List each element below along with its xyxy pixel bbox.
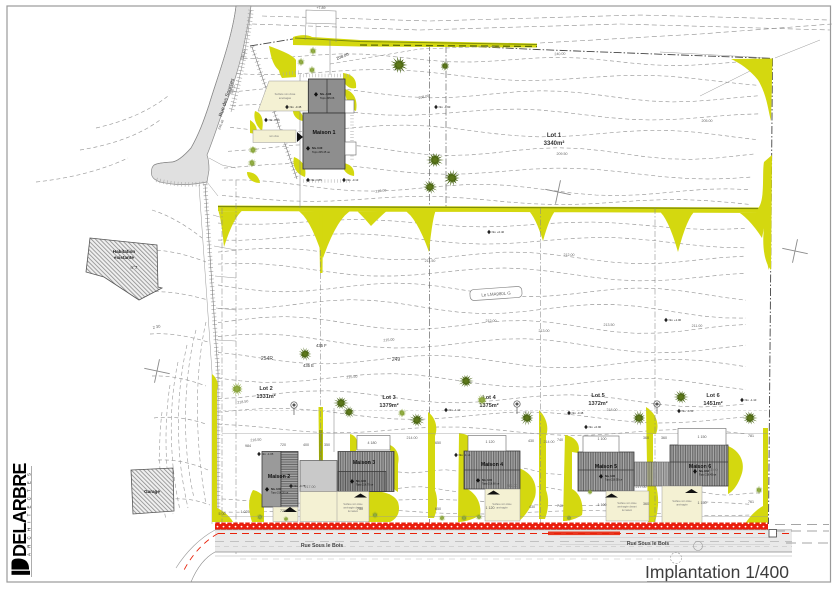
svg-text:Niv. +0.40: Niv. +0.40 [492,230,505,234]
svg-text:Lot 6: Lot 6 [706,393,719,399]
svg-text:435 F: 435 F [316,343,327,348]
svg-text:4 180: 4 180 [368,441,377,445]
svg-text:1 120: 1 120 [486,440,495,444]
svg-text:1 150: 1 150 [698,435,707,439]
svg-text:Topo 205.45 ue: Topo 205.45 ue [312,150,330,154]
svg-text:NE -0.85: NE -0.85 [311,178,322,182]
svg-text:Topo 216.55 ue: Topo 216.55 ue [605,479,623,482]
svg-text:211.00: 211.00 [692,324,703,328]
svg-text:430: 430 [529,505,535,509]
svg-text:761: 761 [748,500,754,504]
svg-text:Maison 4: Maison 4 [481,462,503,468]
svg-text:360: 360 [643,502,649,506]
svg-text:212.00: 212.00 [564,253,575,257]
svg-text:720: 720 [280,443,286,447]
svg-text:Niv. -1.10: Niv. -1.10 [745,398,757,402]
svg-text:214.00: 214.00 [544,440,555,444]
svg-text:350: 350 [324,443,330,447]
svg-text:non clos: non clos [269,134,279,138]
svg-text:Rue Sous le Bois: Rue Sous le Bois [627,541,669,547]
svg-text:217.00: 217.00 [507,484,518,488]
svg-text:Niv. -0.48: Niv. -0.48 [572,411,584,415]
svg-text:1 100: 1 100 [598,437,607,441]
svg-text:ARCHITECTES: ARCHITECTES [27,468,32,556]
svg-text:Niv. +1.00: Niv. +1.00 [669,318,682,322]
svg-text:Habitation: Habitation [113,249,136,254]
svg-text:240.00: 240.00 [554,52,565,57]
svg-text:Niv. -1.10: Niv. -1.10 [449,408,461,412]
svg-text:Niv. -0.86: Niv. -0.86 [320,92,332,96]
svg-text:Surface non close: Surface non close [275,92,296,96]
svg-text:740: 740 [557,438,563,442]
svg-text:213.00: 213.00 [539,329,550,333]
svg-text:Niv. -0.50: Niv. -0.50 [682,409,694,413]
svg-text:3340m²: 3340m² [544,140,565,147]
svg-text:5 00: 5 00 [219,512,226,516]
svg-text:214.00: 214.00 [707,468,718,472]
svg-text:360: 360 [661,436,667,440]
svg-text:Niv. -0.60: Niv. -0.60 [439,105,451,109]
svg-text:205.00: 205.00 [702,119,713,123]
svg-text:1 150: 1 150 [698,501,707,505]
svg-text:Lot 1: Lot 1 [547,133,562,139]
svg-text:Maison 1: Maison 1 [312,130,335,136]
svg-text:750: 750 [357,507,363,511]
svg-text:n°7: n°7 [131,265,138,270]
svg-text:Implantation 1/400: Implantation 1/400 [645,562,789,582]
svg-text:Maison 5: Maison 5 [595,464,617,470]
svg-text:218.00: 218.00 [607,408,618,412]
svg-text:213.50: 213.50 [604,323,615,327]
svg-text:1451m²: 1451m² [703,400,722,407]
svg-text:Topo 205.06: Topo 205.06 [320,96,335,100]
svg-text:Lot 2: Lot 2 [259,386,272,392]
svg-text:+7.89: +7.89 [316,6,325,10]
svg-text:Niv. 0.00: Niv. 0.00 [312,146,323,150]
svg-text:217.00: 217.00 [636,485,647,489]
svg-text:Niv. -0.13: Niv. -0.13 [347,178,359,182]
svg-text:la maison: la maison [622,509,633,512]
svg-text:Niv. -1.14: Niv. -1.14 [459,453,471,457]
svg-text:Niv. +0.90: Niv. +0.90 [589,425,602,429]
svg-text:211.50: 211.50 [425,259,436,263]
svg-text:1331m²: 1331m² [256,393,275,400]
svg-text:720: 720 [280,509,286,513]
svg-text:400: 400 [303,443,309,447]
svg-text:984: 984 [245,444,251,448]
svg-text:1372m²: 1372m² [588,400,607,407]
svg-text:Lot 5: Lot 5 [591,393,604,399]
svg-text:Niv. -0.45: Niv. -0.45 [290,105,302,109]
svg-text:650: 650 [435,441,441,445]
svg-text:1375m²: 1375m² [479,402,498,409]
svg-text:254R: 254R [261,356,273,362]
svg-text:existante: existante [114,255,134,260]
svg-text:Garage: Garage [144,489,160,494]
svg-text:1 100: 1 100 [598,503,607,507]
svg-text:214.00: 214.00 [407,436,418,440]
svg-text:249: 249 [392,357,401,363]
svg-text:216.50: 216.50 [250,438,261,443]
svg-text:212.00: 212.00 [486,319,497,323]
svg-text:1 025: 1 025 [241,510,250,514]
svg-text:Topo 216.30 ue: Topo 216.30 ue [271,492,289,495]
svg-text:aménagée: aménagée [279,96,292,100]
svg-text:Niv. -0.75: Niv. -0.75 [294,484,306,488]
svg-text:217.00: 217.00 [305,485,316,489]
svg-text:Lot 3: Lot 3 [382,395,395,401]
svg-text:Topo 216.45 ue: Topo 216.45 ue [699,474,717,477]
svg-text:650: 650 [435,507,441,511]
svg-text:Niv. -1.05: Niv. -1.05 [262,452,274,456]
svg-text:Maison 2: Maison 2 [268,474,290,480]
svg-text:1 120: 1 120 [486,506,495,510]
svg-text:740: 740 [557,504,563,508]
svg-text:1379m²: 1379m² [379,402,398,409]
svg-text:209.50: 209.50 [557,152,568,156]
svg-text:781: 781 [748,434,754,438]
svg-text:360: 360 [643,436,649,440]
svg-text:aménagée: aménagée [676,504,688,507]
svg-text:Topo 216.70 ue: Topo 216.70 ue [356,484,374,487]
svg-text:Maison 3: Maison 3 [353,460,375,466]
svg-text:430: 430 [528,439,534,443]
svg-text:NE -0.56: NE -0.56 [269,118,280,122]
svg-text:435 E: 435 E [303,363,314,368]
svg-text:Topo 216.60 ue: Topo 216.60 ue [482,483,500,486]
svg-text:aménagée: aménagée [496,507,508,510]
svg-text:Rue Sous le Bois: Rue Sous le Bois [301,543,343,549]
